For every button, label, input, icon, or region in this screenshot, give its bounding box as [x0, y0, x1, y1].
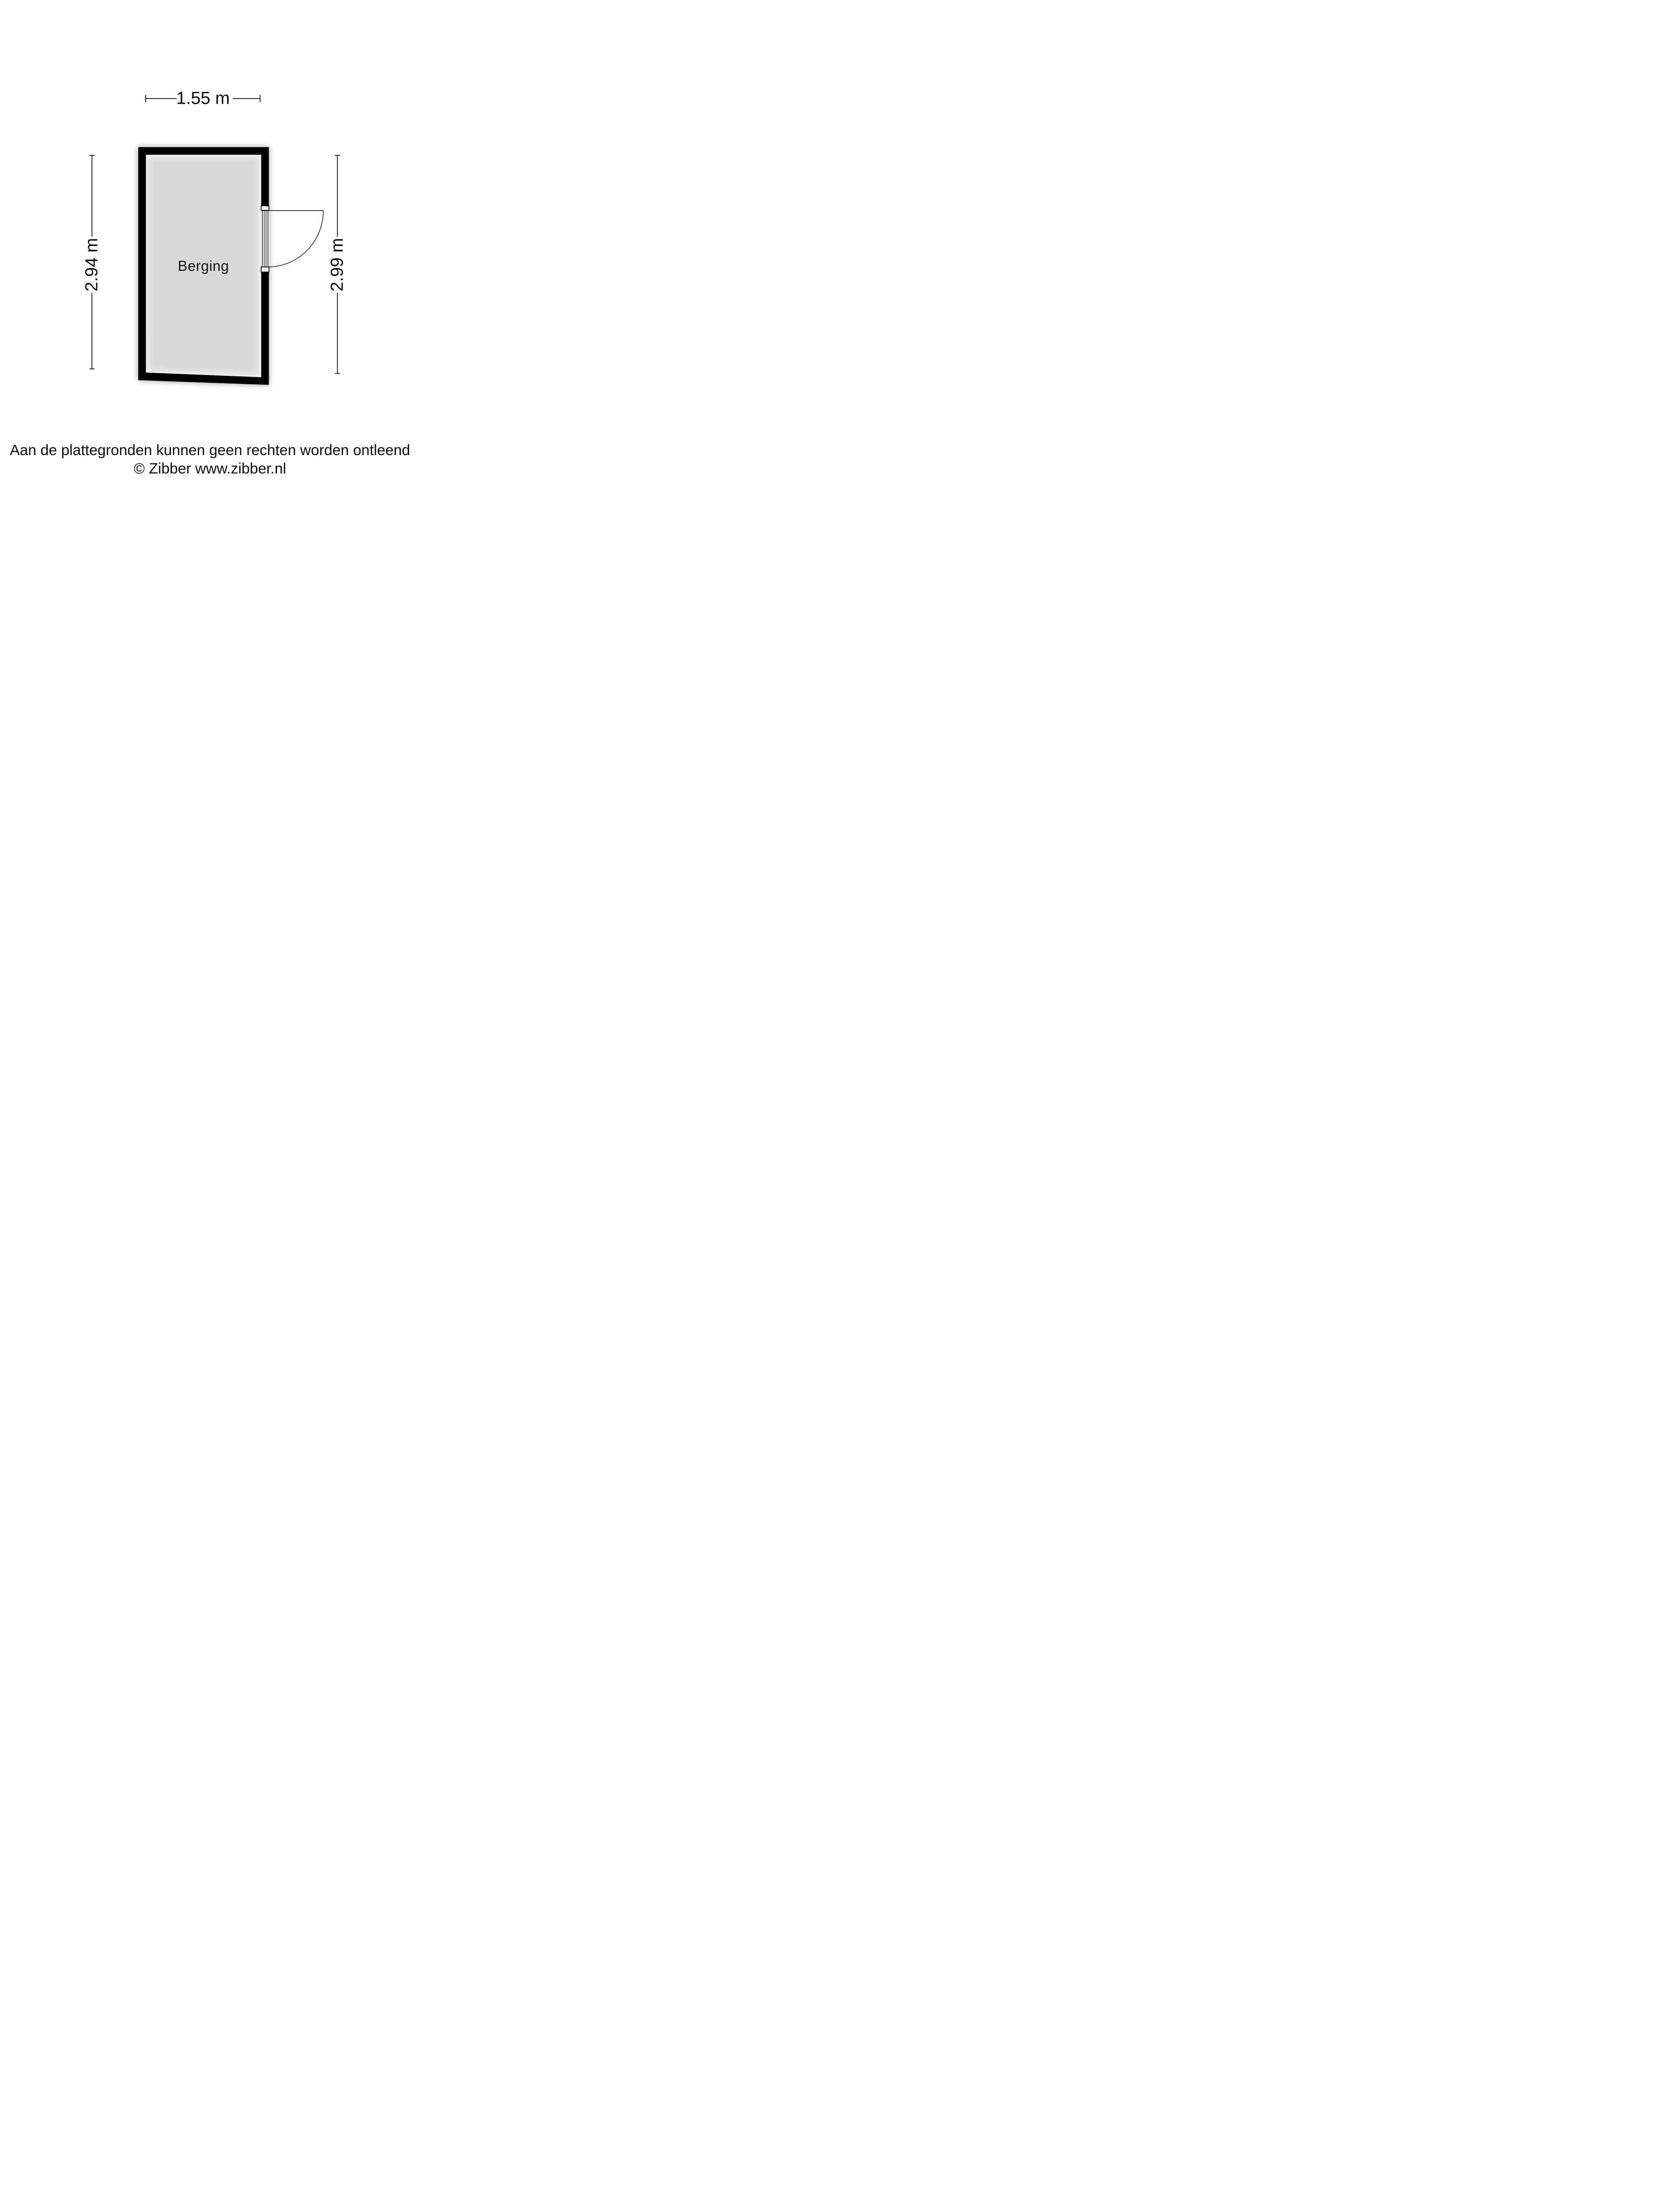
dimension-top-label: 1.55 m — [176, 89, 230, 109]
footer-copyright: © Zibber www.zibber.nl — [0, 459, 420, 478]
dimension-right-label: 2.99 m — [328, 238, 347, 291]
door-jamb-top — [261, 206, 269, 210]
door-swing-arc — [268, 210, 323, 267]
door-jamb-bottom — [261, 267, 269, 272]
dimension-left-label: 2.94 m — [82, 238, 102, 291]
footer-disclaimer: Aan de plattegronden kunnen geen rechten… — [0, 441, 420, 459]
room-label: Berging — [178, 258, 229, 274]
floorplan-page: 1.55 m 2.94 m 2.99 m Berging Aan de plat… — [0, 0, 420, 560]
footer: Aan de plattegronden kunnen geen rechten… — [0, 441, 420, 478]
door-leaf — [262, 210, 268, 267]
